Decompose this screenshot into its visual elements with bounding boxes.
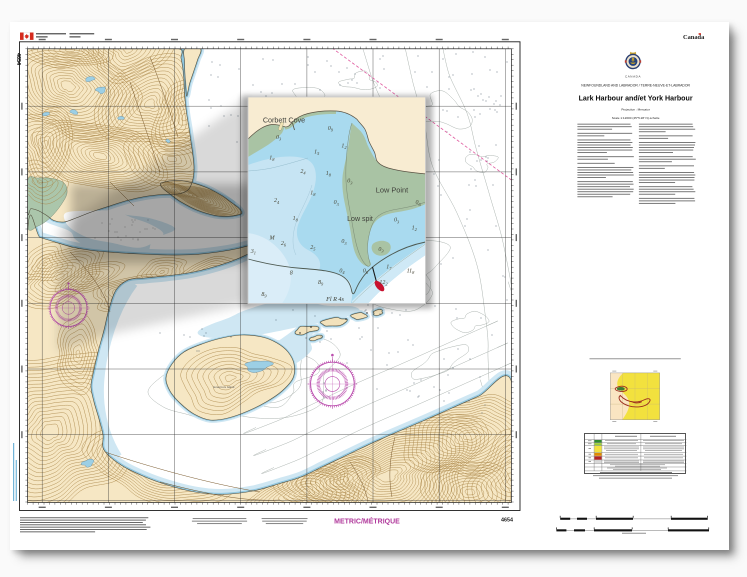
- svg-text:Corbett Cove: Corbett Cove: [263, 116, 305, 125]
- svg-text:04: 04: [339, 268, 345, 275]
- svg-text:06: 06: [363, 268, 369, 275]
- svg-text:03: 03: [378, 247, 384, 254]
- svg-text:M: M: [269, 234, 276, 241]
- svg-text:24: 24: [300, 169, 306, 176]
- svg-text:Lark Harbour and/et York Harbo: Lark Harbour and/et York Harbour: [579, 95, 693, 103]
- svg-text:12: 12: [341, 144, 347, 151]
- svg-text:18: 18: [293, 216, 299, 223]
- svg-text:Scale 1:12000 (45°5.28' N) éch: Scale 1:12000 (45°5.28' N) échelle: [612, 116, 660, 120]
- svg-text:118: 118: [407, 268, 416, 275]
- svg-text:03: 03: [394, 218, 400, 225]
- svg-text:Fl R 4s: Fl R 4s: [325, 296, 344, 303]
- svg-text:25: 25: [310, 245, 316, 252]
- svg-text:09: 09: [328, 126, 334, 133]
- svg-text:CANADA: CANADA: [625, 74, 641, 78]
- svg-text:03: 03: [276, 135, 282, 142]
- svg-text:8: 8: [290, 270, 293, 276]
- svg-text:31: 31: [250, 249, 256, 256]
- svg-text:15: 15: [314, 150, 320, 157]
- svg-text:122: 122: [379, 280, 388, 287]
- svg-text:18: 18: [269, 155, 275, 162]
- svg-text:Canada: Canada: [683, 34, 705, 41]
- svg-text:Low Point: Low Point: [376, 186, 408, 195]
- svg-text:12: 12: [412, 226, 418, 233]
- svg-text:17: 17: [386, 265, 392, 272]
- svg-text:4654: 4654: [15, 53, 21, 65]
- svg-text:Projection : Mercator: Projection : Mercator: [621, 107, 650, 111]
- svg-text:03: 03: [334, 200, 340, 207]
- svg-text:89: 89: [261, 292, 267, 299]
- svg-text:METRIC/MÉTRIQUE: METRIC/MÉTRIQUE: [334, 516, 400, 525]
- svg-text:03: 03: [347, 179, 353, 186]
- svg-text:18: 18: [326, 171, 332, 178]
- svg-text:4654: 4654: [501, 518, 513, 524]
- svg-text:18: 18: [310, 190, 316, 197]
- svg-text:89: 89: [318, 280, 324, 287]
- svg-text:NEWFOUNDLAND AND LABRADOR / TE: NEWFOUNDLAND AND LABRADOR / TERRE-NEUVE-…: [581, 84, 690, 88]
- svg-text:03: 03: [341, 239, 347, 246]
- svg-text:06: 06: [416, 200, 422, 207]
- svg-text:Low spit: Low spit: [347, 216, 373, 223]
- svg-text:Governors Island: Governors Island: [213, 385, 235, 389]
- svg-text:26: 26: [281, 241, 287, 248]
- svg-text:24: 24: [274, 198, 280, 205]
